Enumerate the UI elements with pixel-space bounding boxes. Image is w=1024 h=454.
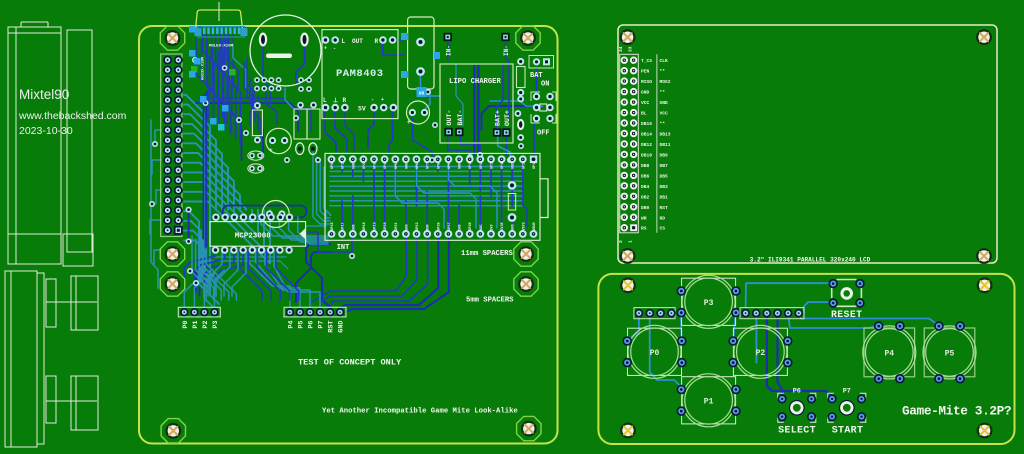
svg-text:GP20: GP20 [384, 222, 388, 230]
svg-text:P0: P0 [182, 321, 190, 329]
svg-text:GP10: GP10 [469, 161, 473, 169]
svg-text:DB10: DB10 [641, 152, 652, 158]
svg-text:GND: GND [405, 224, 409, 230]
svg-text:TEST OF CONCEPT ONLY: TEST OF CONCEPT ONLY [298, 358, 402, 368]
svg-text:P3: P3 [704, 299, 714, 308]
svg-text:P4: P4 [884, 349, 894, 358]
svg-text:Mixtel90: Mixtel90 [19, 87, 69, 102]
svg-text:GND: GND [352, 163, 356, 169]
svg-text:R: R [375, 38, 379, 45]
svg-text:DB15: DB15 [641, 121, 652, 127]
svg-text:DB14: DB14 [641, 131, 652, 137]
svg-text:P6: P6 [793, 387, 801, 395]
svg-text:DB9: DB9 [660, 152, 669, 158]
svg-text:DB6: DB6 [641, 173, 650, 179]
svg-text:-: - [371, 97, 374, 103]
svg-text:OUT+: OUT+ [504, 110, 511, 126]
svg-text:INT: INT [337, 244, 350, 252]
svg-text:SELECT: SELECT [778, 426, 816, 437]
svg-text:GND: GND [512, 163, 516, 169]
svg-text:OUT-: OUT- [446, 110, 453, 126]
svg-text:RUN: RUN [427, 224, 431, 230]
svg-text:1: 1 [628, 240, 634, 243]
svg-text:MCP23008: MCP23008 [235, 233, 272, 241]
svg-text:5V: 5V [358, 106, 366, 113]
svg-text:GND: GND [405, 163, 409, 169]
svg-text:GP15: GP15 [533, 161, 537, 169]
svg-text:L: L [342, 38, 346, 45]
svg-text:34: 34 [618, 46, 624, 52]
svg-text:P1: P1 [704, 397, 714, 406]
svg-text:T_CS: T_CS [641, 58, 652, 64]
svg-text:**: ** [660, 69, 666, 75]
svg-text:DB4: DB4 [641, 184, 650, 190]
svg-text:BAT-: BAT- [457, 110, 464, 126]
svg-text:**: ** [660, 121, 666, 127]
svg-text:P2: P2 [202, 321, 210, 329]
svg-text:WR: WR [641, 215, 647, 221]
svg-text:VCC: VCC [660, 111, 669, 117]
svg-text:GP2: GP2 [363, 163, 367, 169]
svg-text:33: 33 [628, 46, 634, 52]
svg-text:DB2: DB2 [641, 194, 650, 200]
svg-text:2: 2 [618, 240, 624, 243]
svg-text:GP7: GP7 [427, 163, 431, 169]
svg-text:RST: RST [328, 321, 336, 333]
svg-text:L: L [323, 97, 327, 104]
svg-text:MISO: MISO [641, 79, 652, 85]
svg-text:3.2" ILI9341 PARALLEL 320x240: 3.2" ILI9341 PARALLEL 320x240 LCD [750, 257, 871, 264]
svg-text:P1: P1 [192, 321, 200, 329]
svg-text:MOSI: MOSI [660, 79, 671, 85]
svg-text:GP26: GP26 [437, 222, 441, 230]
svg-text:BAT+: BAT+ [495, 110, 502, 126]
svg-text:P0: P0 [650, 349, 660, 358]
svg-text:PAM8403: PAM8403 [336, 68, 384, 80]
svg-text:RST: RST [660, 205, 669, 211]
svg-text:DB5: DB5 [660, 173, 669, 179]
svg-text:Game-Mite 3.2P?: Game-Mite 3.2P? [902, 404, 1011, 419]
svg-text:**: ** [660, 90, 666, 96]
svg-text:CLK: CLK [660, 58, 669, 64]
svg-text:GP14: GP14 [522, 161, 526, 169]
svg-text:GP18: GP18 [363, 222, 367, 230]
svg-text:DB12: DB12 [641, 142, 652, 148]
svg-text:P6: P6 [308, 321, 316, 329]
svg-text:GP19: GP19 [374, 222, 378, 230]
svg-text:DB7: DB7 [660, 163, 669, 169]
svg-text:+: + [407, 119, 411, 126]
svg-text:GP9: GP9 [448, 163, 452, 169]
svg-text:BL: BL [641, 111, 647, 117]
svg-text:P3: P3 [212, 321, 220, 329]
svg-text:GP12: GP12 [490, 161, 494, 169]
svg-text:GP5: GP5 [395, 163, 399, 169]
svg-text:Yet Another Incompatible Game: Yet Another Incompatible Game Mite Look-… [322, 408, 518, 416]
svg-text:5mm SPACERS: 5mm SPACERS [466, 297, 514, 305]
svg-text:GND: GND [459, 224, 463, 230]
svg-text:DB1: DB1 [660, 194, 669, 200]
svg-text:ADC: ADC [480, 224, 484, 230]
svg-text:P7: P7 [843, 387, 851, 395]
svg-text:RS: RS [641, 226, 647, 232]
svg-text:OUT: OUT [352, 38, 363, 45]
svg-text:DB11: DB11 [660, 142, 671, 148]
svg-text:P2: P2 [756, 349, 766, 358]
svg-text:GP17: GP17 [342, 222, 346, 230]
svg-text:START: START [832, 426, 864, 437]
svg-text:GND: GND [338, 321, 346, 333]
svg-text:P4: P4 [287, 321, 295, 329]
svg-text:DB0: DB0 [641, 205, 650, 211]
svg-text:11mm SPACERS: 11mm SPACERS [461, 250, 513, 258]
svg-text:GP0: GP0 [331, 163, 335, 169]
svg-text:GP22: GP22 [416, 222, 420, 230]
svg-text:UR: UR [419, 91, 425, 97]
svg-text:ON: ON [541, 81, 549, 89]
svg-text:GP28: GP28 [469, 222, 473, 230]
svg-text:VCC: VCC [641, 100, 650, 106]
svg-text:GND: GND [352, 224, 356, 230]
svg-text:IN-: IN- [503, 45, 510, 56]
svg-text:DB3: DB3 [660, 184, 669, 190]
svg-text:P5: P5 [945, 349, 955, 358]
svg-text:PEN: PEN [641, 69, 650, 75]
svg-text:GP21: GP21 [395, 222, 399, 230]
svg-text:⊥: ⊥ [333, 97, 338, 104]
svg-text:RESET: RESET [831, 309, 862, 320]
svg-text:GP11: GP11 [480, 161, 484, 169]
svg-text:DB13: DB13 [660, 131, 671, 137]
svg-text:CS: CS [660, 226, 666, 232]
svg-text:GND: GND [459, 163, 463, 169]
svg-text:GP13: GP13 [501, 161, 505, 169]
svg-text:GP6: GP6 [416, 163, 420, 169]
svg-text:R: R [343, 97, 347, 104]
svg-text:GND: GND [660, 100, 669, 106]
svg-text:GP3: GP3 [374, 163, 378, 169]
svg-text:DB8: DB8 [641, 163, 650, 169]
svg-text:RD: RD [660, 215, 666, 221]
svg-text:2023-10-30: 2023-10-30 [19, 125, 73, 137]
svg-text:-: - [333, 46, 336, 52]
svg-text:VSYS: VSYS [522, 222, 526, 230]
svg-text:GP16: GP16 [331, 222, 335, 230]
svg-text:3V3E: 3V3E [501, 222, 505, 230]
svg-text:P5: P5 [297, 321, 305, 329]
svg-text:P7: P7 [318, 321, 326, 329]
svg-text:+: + [324, 46, 327, 52]
svg-text:+: + [381, 97, 384, 103]
svg-text:3V3: 3V3 [490, 224, 494, 230]
svg-text:GND: GND [512, 224, 516, 230]
svg-text:OFF: OFF [537, 130, 550, 138]
svg-text:+: + [269, 147, 273, 154]
svg-text:IN-: IN- [446, 45, 453, 56]
svg-text:BAT: BAT [530, 72, 543, 80]
svg-text:VBUS: VBUS [533, 222, 537, 230]
svg-text:GND: GND [641, 90, 650, 96]
svg-text:GP8: GP8 [437, 163, 441, 169]
svg-text:www.thebackshed.com: www.thebackshed.com [18, 110, 127, 122]
svg-text:GP27: GP27 [448, 222, 452, 230]
svg-text:GP4: GP4 [384, 163, 388, 169]
svg-text:MOLEX-X10M: MOLEX-X10M [209, 45, 234, 49]
svg-text:GP1: GP1 [342, 163, 346, 169]
svg-text:LIPO CHARGER: LIPO CHARGER [449, 78, 501, 86]
svg-text:HOƧ3X‑X10M: HOƧ3X‑X10M [202, 56, 206, 80]
